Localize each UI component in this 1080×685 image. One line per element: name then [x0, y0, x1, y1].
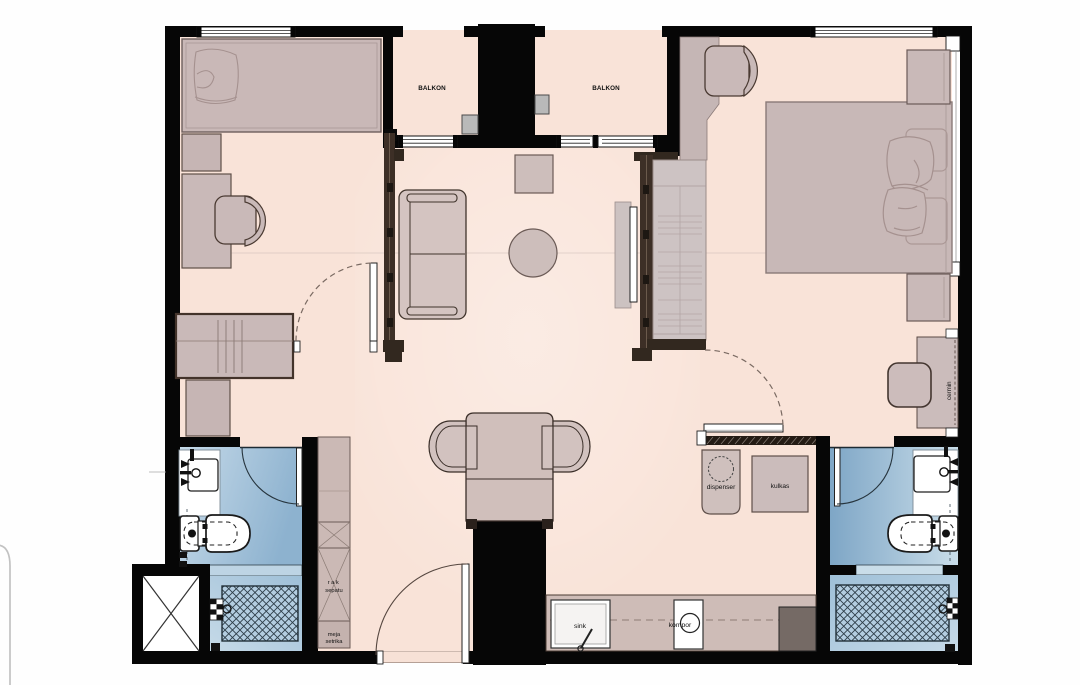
svg-text:BALKON: BALKON: [592, 85, 620, 92]
svg-text:setrika: setrika: [325, 639, 343, 645]
svg-text:kulkas: kulkas: [771, 483, 790, 490]
svg-text:sepatu: sepatu: [325, 588, 342, 594]
svg-text:cermin: cermin: [946, 381, 953, 400]
svg-text:kompor: kompor: [669, 622, 692, 629]
svg-text:BALKON: BALKON: [418, 85, 446, 92]
svg-text:dispenser: dispenser: [707, 484, 736, 491]
svg-text:meja: meja: [328, 632, 341, 638]
svg-text:rak: rak: [328, 580, 341, 586]
svg-text:sink: sink: [574, 623, 587, 630]
